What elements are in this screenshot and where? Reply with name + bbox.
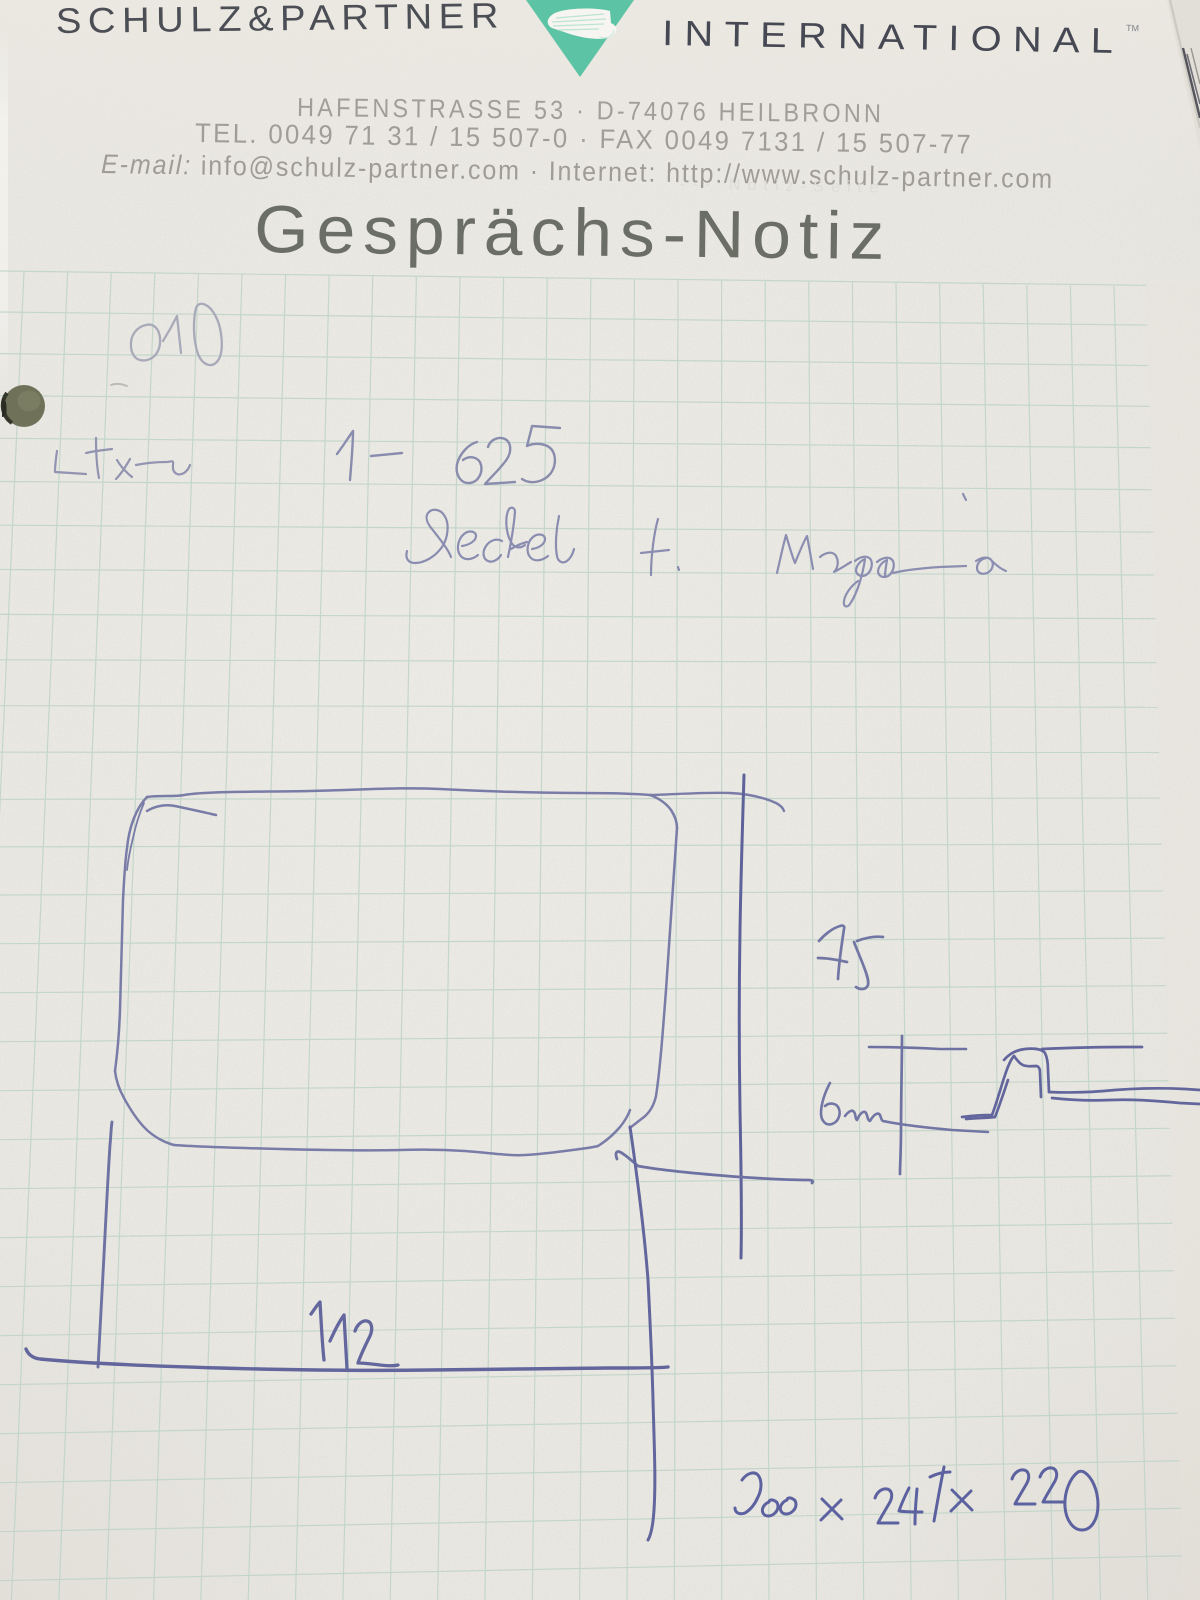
svg-text:INTERNATIONAL: INTERNATIONAL xyxy=(662,13,1125,61)
svg-text:Gesprächs-Notiz: Gesprächs-Notiz xyxy=(254,192,893,274)
svg-text:TM: TM xyxy=(1126,23,1139,33)
svg-text:SCHULZ&PARTNER: SCHULZ&PARTNER xyxy=(56,0,505,41)
svg-text:--- Notiz-Seite: --- Notiz-Seite xyxy=(680,176,880,196)
